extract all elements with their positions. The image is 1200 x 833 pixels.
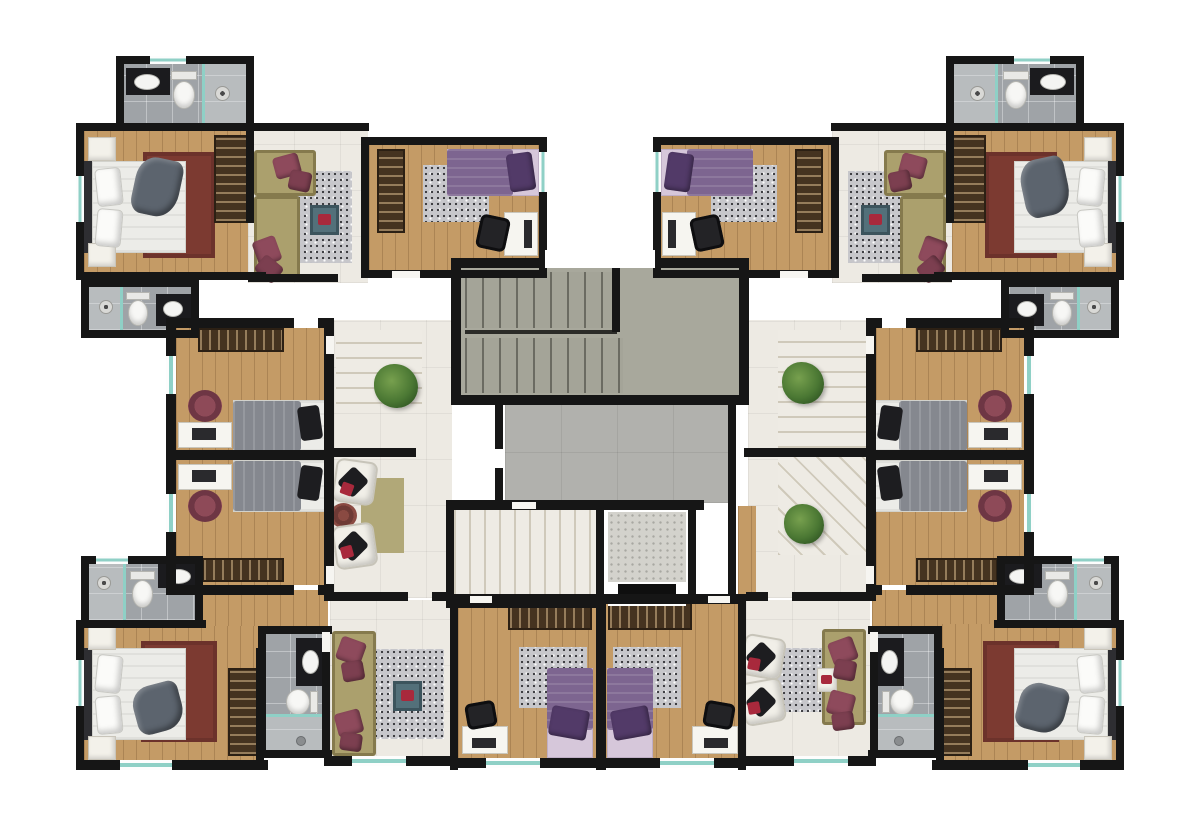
top-stairwell-landing [545, 250, 655, 268]
wall-lower-stairs-left [446, 500, 454, 608]
tr-bath-sink-basin [1040, 74, 1066, 90]
bbr-chair [702, 700, 736, 731]
tr-bath-toilet-bowl [1005, 81, 1027, 109]
br-bed-headboard [1108, 648, 1116, 740]
tr-bedroom2-monitor [668, 220, 676, 248]
wall-elevator-left [596, 504, 604, 604]
window-bl-bedroom-bottom [120, 760, 172, 770]
wall-br-living-top-stub [746, 592, 768, 601]
mr-bath-toilet-tank [1050, 292, 1074, 300]
tr-coffee-table-decor [869, 214, 882, 225]
ml-bath-shower-glass [120, 287, 123, 330]
br-side-table-decor [821, 675, 832, 684]
wall-mr-bath-top [1001, 279, 1119, 287]
window-br-bedroom-bottom [1028, 760, 1080, 770]
ml-bath-sink-basin [163, 301, 183, 317]
bl-nightstand-top [88, 626, 116, 650]
door-ml-bottom-room [326, 566, 334, 584]
wall-ml-rooms-divider [166, 450, 334, 460]
mr-top-chair [978, 390, 1012, 422]
tr-bath-shower-glass [995, 64, 998, 126]
bl-bath-shower-glass [123, 564, 126, 620]
wall-mr-bath-bottom [1001, 330, 1119, 338]
wall-left-lounge-mid [324, 448, 416, 457]
wall-tr-top [831, 123, 1124, 131]
bl-bed-pillow-2 [94, 695, 123, 735]
tl-sofa-cushion-2 [287, 169, 313, 193]
br-nightstand-bottom [1084, 736, 1112, 760]
tr-bedroom2-bed-pillow [663, 151, 694, 192]
wall-tl-living-bedroom2 [361, 137, 369, 278]
wall-tr-bedroom-living [946, 131, 954, 223]
window-mr-bottom-room [1024, 494, 1034, 532]
ml-bottom-wardrobe [202, 558, 284, 582]
ml-top-chair [188, 390, 222, 422]
bl-bed-pillow-1 [94, 654, 124, 695]
tr-nightstand-top [1084, 137, 1112, 161]
ml-top-wardrobe [198, 328, 284, 352]
window-mr-top-room [1024, 356, 1034, 394]
bbr-laptop [704, 738, 728, 748]
tr-bedroom2-bed-duvet [687, 149, 753, 196]
br-nightstand-top [1084, 626, 1112, 650]
door-hall-bottom [512, 502, 536, 509]
wall-br-bedroom-top [994, 620, 1124, 628]
bl-wardrobe [228, 668, 258, 756]
window-tr-bedroom2 [653, 152, 661, 192]
window-tr-bedroom [1116, 176, 1124, 222]
br-sofa-cushion-2 [832, 658, 857, 682]
tr-bath-shower-head [970, 86, 985, 101]
br-bath-shower-head [1089, 576, 1103, 590]
tl-nightstand-top [88, 137, 116, 161]
tr-bath-toilet-tank [1003, 71, 1029, 80]
wall-tl-bedroom2-top [361, 137, 547, 145]
wall-tl-bedroom-living [246, 131, 254, 223]
br-inner-bath-glass [878, 714, 936, 717]
wall-tr-bath-left [946, 56, 954, 131]
tl-bedroom2-wardrobe [377, 149, 405, 233]
wall-mr-rooms-top [906, 318, 1034, 328]
wall-bl-living-top [324, 592, 408, 601]
br-living-armchair-1-accent [747, 657, 761, 671]
wall-tr-living-bottom [862, 274, 952, 282]
br-wardrobe [942, 668, 972, 756]
lower-stairwell-floor [454, 506, 596, 602]
wall-bl-inner-bath-top [258, 626, 332, 634]
br-inner-bath-sink-basin [881, 650, 898, 674]
tr-bed-pillow-2 [1076, 208, 1105, 248]
ml-top-laptop [192, 428, 216, 440]
door-mr-bottom-room [866, 566, 874, 584]
br-sofa-cushion-4 [831, 711, 855, 732]
door-bl-inner-bath [322, 632, 330, 652]
tl-bedroom2-monitor [524, 220, 532, 248]
elevator-cab-floor [608, 512, 686, 582]
bl-inner-bath-toilet-bowl [286, 689, 310, 715]
bl-nightstand-bottom [88, 736, 116, 760]
wall-bb-center [596, 594, 606, 770]
tl-bed-pillow-1 [94, 167, 124, 208]
tr-bed-pillow-1 [1076, 167, 1106, 208]
window-bl-living-bottom [352, 756, 406, 766]
window-bl-bedroom [76, 660, 84, 706]
bl-bathroom-shower-floor [89, 564, 123, 620]
mr-bottom-laptop [984, 470, 1008, 482]
window-ml-bottom-room [166, 494, 176, 532]
window-bbl-bottom [486, 758, 540, 768]
bl-inner-bath-drain [296, 736, 306, 746]
bbr-wardrobe [608, 602, 692, 630]
wall-ml-bath-top [81, 279, 199, 287]
bbl-bed-pillow [548, 705, 591, 741]
bl-bath-toilet-tank [130, 571, 155, 580]
tl-bed-headboard [84, 161, 92, 253]
wall-mr-rooms-left [866, 328, 876, 585]
door-mr-top-room [866, 336, 874, 354]
ml-bottom-laptop [192, 470, 216, 482]
tl-bedroom2-bed-pillow [505, 151, 536, 192]
top-stairs-rail [465, 330, 617, 334]
mr-bottom-bed-pillow [877, 465, 904, 502]
right-hall-stairs-lower [778, 455, 866, 555]
right-hall-plant-upper [782, 362, 824, 404]
wall-bl-bath-right [195, 556, 203, 628]
mr-bath-shower-head [1087, 300, 1101, 314]
top-stairs-divider-wall [612, 266, 620, 332]
br-bath-shower-glass [1074, 564, 1077, 620]
wall-ml-bath-right [191, 279, 199, 338]
wall-tl-living-bottom [248, 274, 338, 282]
wall-mr-rooms-bottom [906, 585, 1034, 595]
tl-bath-shower-glass [202, 64, 205, 126]
wall-ml-rooms-top-stub [318, 318, 334, 328]
wall-tl-bath-right [246, 56, 254, 131]
entry-wood-strip [738, 506, 756, 602]
wall-br-bath-right [1111, 556, 1119, 628]
wall-bl-inner-bath-bottom [258, 750, 332, 758]
ml-bath-shower-head [99, 300, 113, 314]
right-hall-plant-lower [784, 504, 824, 544]
ml-bath-toilet-bowl [128, 300, 148, 326]
wall-bb-left [450, 594, 458, 770]
window-bl-bath [96, 556, 128, 564]
mr-bottom-wardrobe [916, 558, 998, 582]
br-hallway-floor [872, 590, 998, 626]
tl-coffee-table-decor [318, 214, 331, 225]
wall-tr-living-bedroom2 [831, 137, 839, 278]
bl-bed-headboard [84, 648, 92, 740]
wall-br-inner-bath-bottom [868, 750, 942, 758]
br-bath-toilet-bowl [1047, 580, 1068, 608]
wall-tl-top [76, 123, 369, 131]
br-bed-pillow-1 [1076, 654, 1106, 695]
wall-bb-right [738, 594, 746, 770]
bl-sofa-cushion-2 [340, 659, 365, 683]
wall-right-lounge-mid [744, 448, 866, 457]
mr-top-laptop [984, 428, 1008, 440]
wall-br-inner-bath-top [868, 626, 942, 634]
bl-inner-bath-glass [264, 714, 322, 717]
bl-inner-bath-toilet-tank [310, 691, 318, 713]
top-stairs-upper-flight [465, 272, 613, 328]
ml-top-bed-duvet [233, 401, 301, 451]
elevator-side-corridor [696, 506, 728, 604]
floor-plan [0, 0, 1200, 833]
wall-tr-bedroom2-top [653, 137, 839, 145]
wall-tr-bath-right [1076, 56, 1084, 131]
tr-wardrobe [952, 135, 986, 223]
wall-hall-bottom [446, 500, 704, 510]
mr-top-wardrobe [916, 328, 1002, 352]
wall-br-bath-left [997, 556, 1005, 628]
tl-bath-shower-head [215, 86, 230, 101]
ml-bottom-bed-pillow [297, 465, 324, 502]
wall-hall-left-upper [495, 403, 503, 449]
left-hall-plant [374, 364, 418, 408]
ml-top-bed-pillow [297, 405, 324, 442]
window-br-bedroom [1116, 660, 1124, 706]
wall-top-stairwell-right [739, 258, 749, 405]
bl-inner-bath-sink-basin [302, 650, 319, 674]
bl-coffee-table-decor [401, 690, 414, 701]
mr-bath-toilet-bowl [1052, 300, 1072, 326]
ml-bath-toilet-tank [126, 292, 150, 300]
ml-bottom-chair [188, 490, 222, 522]
br-bath-toilet-tank [1045, 571, 1070, 580]
tl-wardrobe [214, 135, 248, 223]
window-tl-bedroom2 [539, 152, 547, 192]
mr-bath-sink-basin [1017, 301, 1037, 317]
window-tr-bath [1014, 56, 1050, 64]
wall-bl-bottom [76, 760, 268, 770]
br-inner-bath-toilet-tank [882, 691, 890, 713]
mr-top-bed-pillow [877, 405, 904, 442]
mr-bath-shower-glass [1077, 287, 1080, 330]
window-tl-bedroom [76, 176, 84, 222]
wall-bl-bath-left [81, 556, 89, 628]
tl-bedroom2-bed-duvet [447, 149, 513, 196]
tr-bedroom2-wardrobe [795, 149, 823, 233]
window-ml-top-room [166, 356, 176, 394]
wall-br-bedroom-left [936, 648, 944, 770]
tl-bath-toilet-tank [171, 71, 197, 80]
wall-elevator-right [688, 504, 696, 604]
tl-bath-sink-basin [134, 74, 160, 90]
window-bbr-bottom [660, 758, 714, 768]
wall-mr-bath-left [1001, 279, 1009, 338]
mr-bottom-bed-duvet [899, 461, 967, 511]
window-tl-bath [150, 56, 186, 64]
wall-hall-right [728, 403, 736, 604]
door-ml-top-room [326, 336, 334, 354]
bl-bath-shower-head [97, 576, 111, 590]
door-br-inner-bath [870, 632, 878, 652]
window-br-bath [1072, 556, 1104, 564]
mr-bottom-chair [978, 490, 1012, 522]
bl-bath-toilet-bowl [132, 580, 153, 608]
window-br-living-bottom [794, 756, 848, 766]
door-tr-bedroom2 [780, 271, 808, 278]
top-stairs-lower-flight [465, 338, 623, 393]
br-inner-bath-drain [894, 736, 904, 746]
wall-bl-inner-bath-left [258, 626, 266, 758]
wall-mr-rooms-top-stub [866, 318, 882, 328]
bl-hallway-floor [202, 590, 328, 626]
tr-bed-headboard [1108, 161, 1116, 253]
wall-mr-rooms-divider [866, 450, 1034, 460]
br-inner-bath-toilet-bowl [890, 689, 914, 715]
wall-top-stairwell-left [451, 258, 461, 405]
br-living-armchair-2-accent [747, 701, 761, 715]
wall-ml-rooms-bottom [166, 585, 294, 595]
wall-bl-bedroom-top [76, 620, 206, 628]
tl-bath-toilet-bowl [173, 81, 195, 109]
door-tl-bedroom2 [392, 271, 420, 278]
wall-tl-bath-left [116, 56, 124, 131]
mr-top-bed-duvet [899, 401, 967, 451]
wall-ml-rooms-top [166, 318, 294, 328]
wall-br-living-top [792, 592, 876, 601]
wall-ml-bath-bottom [81, 330, 199, 338]
ml-bottom-bed-duvet [233, 461, 301, 511]
door-bbr [708, 596, 730, 603]
tl-bedroom2-desk [504, 212, 538, 256]
door-bbl [470, 596, 492, 603]
br-bed-pillow-2 [1076, 695, 1105, 735]
bl-sofa-cushion-4 [339, 732, 363, 753]
tl-bed-pillow-2 [94, 208, 123, 248]
bbl-chair [464, 700, 498, 731]
br-bathroom-shower-floor [1077, 564, 1111, 620]
center-hall-floor [505, 403, 730, 503]
bbl-laptop [472, 738, 496, 748]
